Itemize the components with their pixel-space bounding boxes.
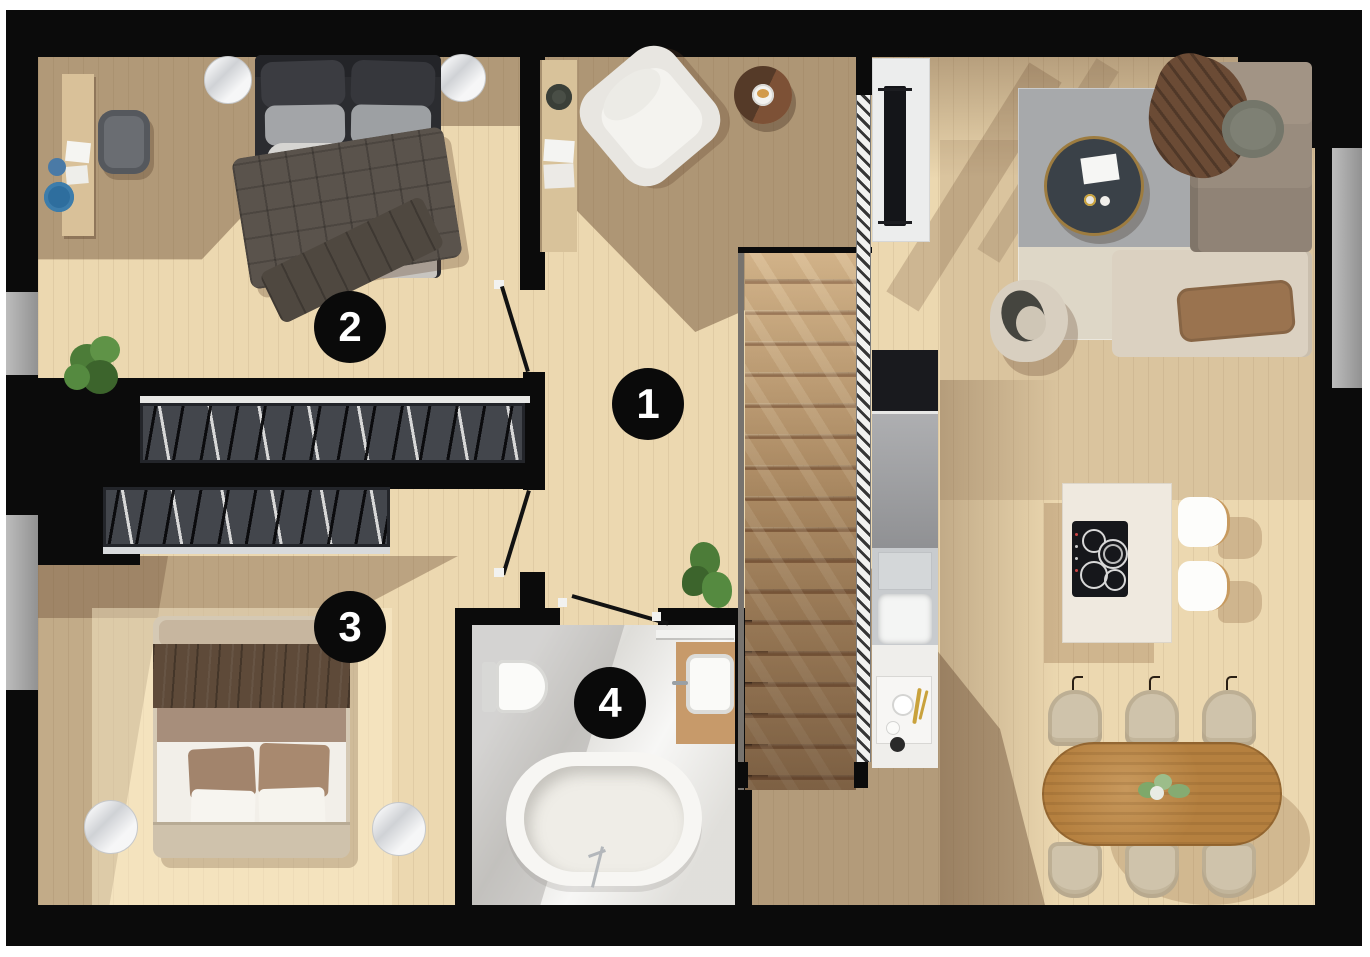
chair-frame-icon [1072, 676, 1083, 690]
blue-lamp [48, 158, 66, 176]
coffee-table-cup [1084, 194, 1096, 206]
nightstand-round [204, 56, 252, 104]
table-centerpiece-plant [1134, 772, 1194, 812]
toilet [496, 660, 548, 713]
room-marker-label: 3 [338, 603, 361, 651]
room-marker-label: 4 [598, 679, 621, 727]
side-table-round [372, 802, 426, 856]
blue-stool [44, 182, 74, 212]
bathroom-wall [455, 608, 472, 905]
sink-faucet-icon [672, 681, 688, 685]
dining-chair [1202, 842, 1256, 898]
pillow [260, 60, 346, 109]
room-marker-4[interactable]: 4 [574, 667, 646, 739]
bed-bench [153, 822, 350, 858]
bar-stool [1178, 497, 1230, 547]
plate [886, 721, 900, 735]
stair-rail [738, 253, 744, 790]
dining-chair [1048, 842, 1102, 898]
cutting-board [878, 552, 932, 590]
stair-railing-hatched [856, 95, 871, 762]
croissant [757, 89, 769, 98]
pillow [350, 60, 436, 109]
round-pillow [1222, 100, 1284, 158]
dining-chair [1048, 690, 1102, 746]
side-table-round [84, 800, 138, 854]
wardrobe-open-closet [140, 403, 525, 463]
door-frame-mark [652, 612, 661, 621]
window [1332, 148, 1362, 388]
door-frame-mark [494, 568, 504, 577]
door-frame-mark [558, 598, 567, 607]
dining-chair [1125, 690, 1179, 746]
potted-plant [680, 538, 736, 616]
kitchen-counter-grey [872, 414, 938, 548]
desk-chair [98, 110, 150, 174]
bathroom-wall [455, 608, 560, 625]
dining-chair [1202, 690, 1256, 746]
chair-frame-icon [1149, 676, 1160, 690]
towel-rail [656, 630, 734, 638]
bar-stool [1178, 561, 1230, 611]
chair-frame-icon [1226, 676, 1237, 690]
potted-plant [64, 334, 128, 400]
coaster [890, 737, 905, 752]
wall [130, 463, 545, 489]
magazines [543, 163, 574, 189]
wardrobe-shelf-edge [103, 547, 390, 554]
tv-screen [884, 86, 906, 226]
floor-plan: 1 2 3 4 [0, 0, 1370, 957]
bathtub-basin [524, 766, 684, 872]
desk-papers [65, 165, 88, 185]
railing-post [856, 57, 872, 95]
coffee-table-cup [1100, 196, 1110, 206]
bed-double [153, 616, 350, 858]
staircase [745, 253, 856, 790]
pillow [265, 104, 346, 145]
plate [892, 694, 914, 716]
induction-hob [1072, 521, 1128, 597]
wardrobe-shelf-edge [140, 396, 530, 403]
railing-post [736, 762, 748, 788]
window [6, 515, 38, 690]
kitchen-sink [878, 594, 932, 644]
window [6, 292, 38, 375]
coffee-table-round [1044, 136, 1144, 236]
room-marker-2[interactable]: 2 [314, 291, 386, 363]
table-lamp [546, 84, 572, 110]
bed-sheet [157, 708, 346, 742]
tv-foot [878, 88, 912, 91]
nightstand-round [438, 54, 486, 102]
dining-chair [1125, 842, 1179, 898]
magazines [543, 139, 574, 163]
sofa-pillow [1176, 279, 1296, 343]
toilet-tank [482, 662, 496, 712]
wardrobe-open-closet [103, 487, 390, 547]
room-marker-3[interactable]: 3 [314, 591, 386, 663]
bed-throw [153, 644, 350, 708]
bathroom-sink [686, 654, 734, 714]
coffee-table-papers [1080, 154, 1119, 185]
room-marker-1[interactable]: 1 [612, 368, 684, 440]
room-marker-label: 1 [636, 380, 659, 428]
room-marker-label: 2 [338, 303, 361, 351]
desk-papers [65, 141, 91, 163]
railing-post [854, 762, 868, 788]
refrigerator-top [872, 350, 938, 414]
tv-foot [878, 221, 912, 224]
